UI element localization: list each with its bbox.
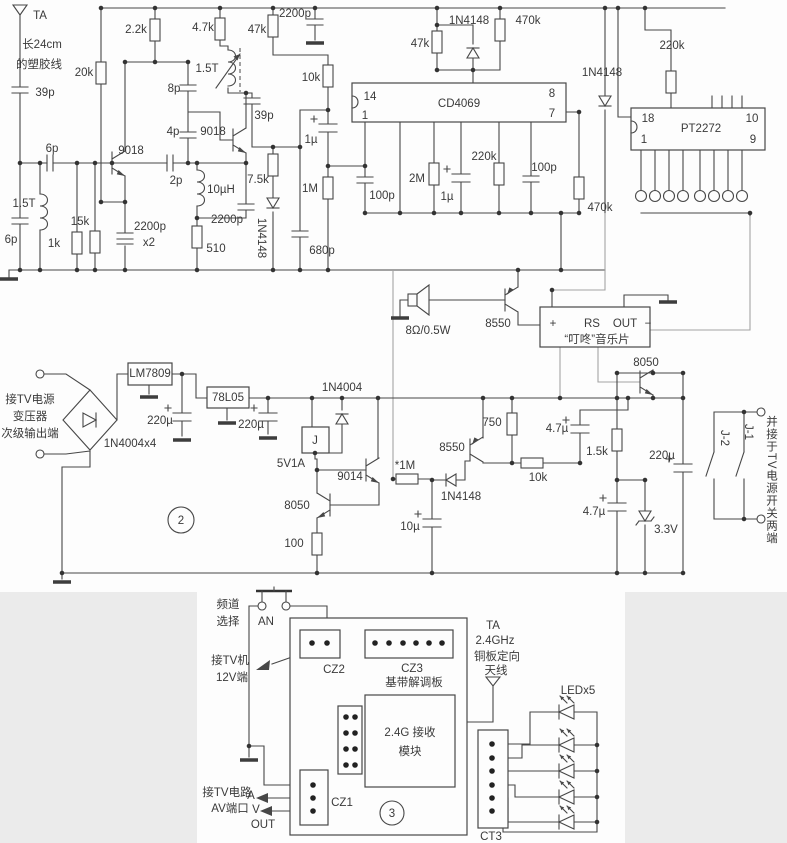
pin-18: 18 [642,113,655,125]
pin-1: 1 [362,110,368,122]
ic-78l05: 78L05 [212,392,244,404]
r-47k-1: 47k [248,24,267,36]
r-1k: 1k [48,238,60,250]
an-button-pin-1 [258,602,266,610]
conn-cz1: CZ1 [331,797,353,809]
r-470k-1: 470k [516,15,541,27]
button-an: AN [258,616,274,628]
ant3-ta: TA [486,620,500,632]
c-1u-2: 1µ [440,191,453,203]
schematic-page: TA长24cm的塑胶线39p6p1.5T6p1k15k20k90182.2k22… [0,0,787,843]
d-1n4148-1: 1N4148 [255,218,267,258]
conn-cz3: CZ3 [401,663,423,675]
l-1t5-2: 1.5T [195,63,218,75]
r-10k-1: 10k [302,72,321,84]
channel-1: 频道 [217,597,240,611]
r-15k: 15k [71,216,90,228]
d-1n4148-4: 1N4148 [441,491,481,503]
r-510: 510 [206,243,225,255]
music-minus: − [645,318,652,330]
music-plus: + [550,318,557,330]
page-margin-right [625,592,787,843]
r-220k-1: 220k [472,151,497,163]
r-47k-2: 47k [411,38,430,50]
c-6p-2: 6p [5,234,18,246]
music-chip-section [393,213,750,479]
music-name: “叮咚”音乐片 [564,332,629,346]
module-2g4-box [365,695,455,787]
board-name: 基带解调板 [385,675,443,689]
r-4k7: 4.7k [192,22,214,34]
pin-9: 9 [750,134,756,146]
channel-2: 选择 [217,614,240,628]
c-4p: 4p [167,126,180,138]
antenna-note-2: 的塑胶线 [16,57,62,71]
r-100: 100 [284,538,303,550]
c-8p: 8p [168,83,181,95]
tv-in-3: 次级输出端 [1,426,59,440]
module-1: 2.4G 接收 [384,725,436,739]
c-2200p-top: 2200p [279,8,311,20]
antenna-ta-label: TA [33,10,47,22]
c-4u7-2: 4.7µ [583,506,606,518]
section-3: 3 [389,808,395,820]
pin-7: 7 [549,108,555,120]
c-39p-2: 39p [254,110,273,122]
q-9018-2: 9018 [200,126,226,138]
ant3-name: 天线 [485,663,508,677]
av-a: A [247,790,255,802]
relay-j: J [312,435,318,447]
pin-1b: 1 [641,134,647,146]
r-7k5: 7.5k [247,174,269,186]
c-680p: 680p [309,245,335,257]
tv-in-1: 接TV电源 [5,392,55,406]
conn-cz2: CZ2 [323,664,345,676]
c-2200p-2: 2200p [211,214,243,226]
pin-8: 8 [549,88,555,100]
relay-spec: 5V1A [277,458,305,470]
ant3-freq: 2.4GHz [476,635,515,647]
tv-transformer-terminal-2 [36,450,44,458]
c-100p-1: 100p [369,190,395,202]
ic-lm7809: LM7809 [129,368,171,380]
c-10u: 10µ [400,521,420,533]
c-2p: 2p [170,175,183,187]
receiver-board-section [249,587,597,835]
c-2200p-x2: 2200p [134,221,166,233]
r-10k-2: 10k [529,472,548,484]
antenna-icon [13,5,27,15]
r-1m-star: *1M [395,460,415,472]
pin-10: 10 [746,113,759,125]
arrow-av-a [256,793,268,803]
relay-contact-terminal-1 [757,408,765,416]
l-10uh: 10µH [207,184,235,196]
c-220u-2: 220µ [238,419,264,431]
circuit-schematic: TA长24cm的塑胶线39p6p1.5T6p1k15k20k90182.2k22… [0,0,787,843]
c-100p-2: 100p [531,162,557,174]
ant3-type: 铜板定向 [474,649,520,663]
contact-j1: J-1 [742,424,754,440]
music-out: OUT [613,318,637,330]
arrow-12v [256,660,270,670]
r-1m: 1M [302,183,318,195]
d-1n4148-2: 1N4148 [449,15,489,27]
c-220u-3: 220µ [649,450,675,462]
c-4u7-1: 4.7µ [546,423,569,435]
c-220u-1: 220µ [147,415,173,427]
tv12v-2: 12V端 [216,671,248,684]
q-9014: 9014 [337,471,363,483]
conn-ct3: CT3 [480,831,502,843]
tv-transformer-terminal-1 [36,370,44,378]
contact-j2: J-2 [718,430,730,446]
speaker-icon [408,285,429,315]
c-2200p-x2b: x2 [143,237,155,249]
page-margin-left [0,592,197,843]
conn-cz2-box [300,630,340,658]
q-8050-left: 8050 [284,500,310,512]
c-1u-1: 1µ [304,134,317,146]
note-parallel-switch: 并接于TV电源开关两端 [765,415,778,545]
r-2m: 2M [409,173,425,185]
r-220k-2: 220k [660,40,685,52]
arrow-av-v [260,806,272,816]
av-out: OUT [251,819,275,831]
ic-cd4069: CD4069 [438,98,480,110]
av-2: AV端口 [211,802,249,815]
module-header-box [338,706,362,774]
rf-decoder-section [9,5,765,277]
d-bridge: 1N4004x4 [104,438,157,450]
l-1t5-1: 1.5T [12,198,35,210]
section-2: 2 [178,515,184,527]
tv-in-2: 变压器 [13,409,48,423]
c-6p-1: 6p [46,143,59,155]
r-2k2: 2.2k [125,24,147,36]
r-1k5: 1.5k [586,446,608,458]
bridge-diode [83,413,96,427]
pin-14: 14 [364,91,377,103]
antenna-note-1: 长24cm [22,38,62,51]
music-rs: RS [584,318,600,330]
q-8050-right: 8050 [633,357,659,369]
r-20k: 20k [75,67,94,79]
r-470k-2: 470k [588,202,613,214]
d-zener: 3.3V [654,524,678,536]
an-button-pin-2 [282,602,290,610]
relay-contact-terminal-2 [757,515,765,523]
av-1: 接TV电路 [202,785,252,799]
av-v: V [252,804,260,816]
q-8550-2: 8550 [439,442,465,454]
speaker-spec: 8Ω/0.5W [405,325,450,337]
q-8550-mid: 8550 [485,318,511,330]
c-39p-1: 39p [35,87,54,99]
tv12v-1: 接TV机 [211,653,249,667]
d-1n4004: 1N4004 [322,382,363,394]
module-2: 模块 [399,745,422,758]
ic-pt2272: PT2272 [681,123,721,135]
led-count: LEDx5 [561,685,596,697]
d-1n4148-3: 1N4148 [582,67,622,79]
pt2272-output-pads [636,191,748,202]
q-9018-1: 9018 [118,145,144,157]
r-750: 750 [482,417,501,429]
